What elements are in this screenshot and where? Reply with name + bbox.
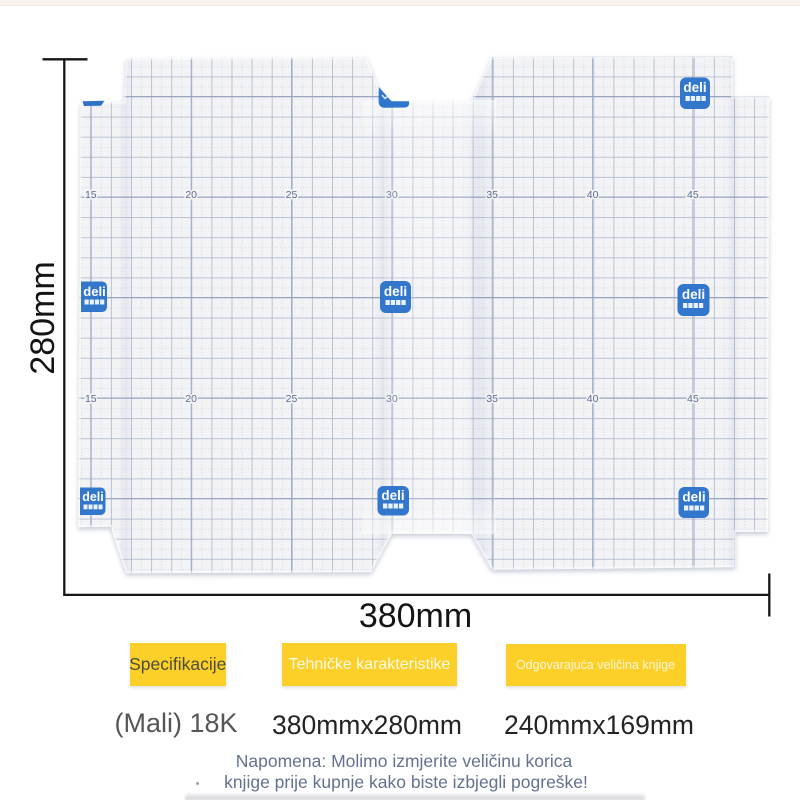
svg-text:deli: deli xyxy=(384,284,407,299)
svg-text:deli: deli xyxy=(82,490,104,504)
svg-text:deli: deli xyxy=(83,284,105,299)
svg-text:deli: deli xyxy=(682,287,705,302)
svg-text:deli: deli xyxy=(682,490,705,505)
svg-text:deli: deli xyxy=(683,80,706,95)
svg-text:deli: deli xyxy=(381,488,404,503)
